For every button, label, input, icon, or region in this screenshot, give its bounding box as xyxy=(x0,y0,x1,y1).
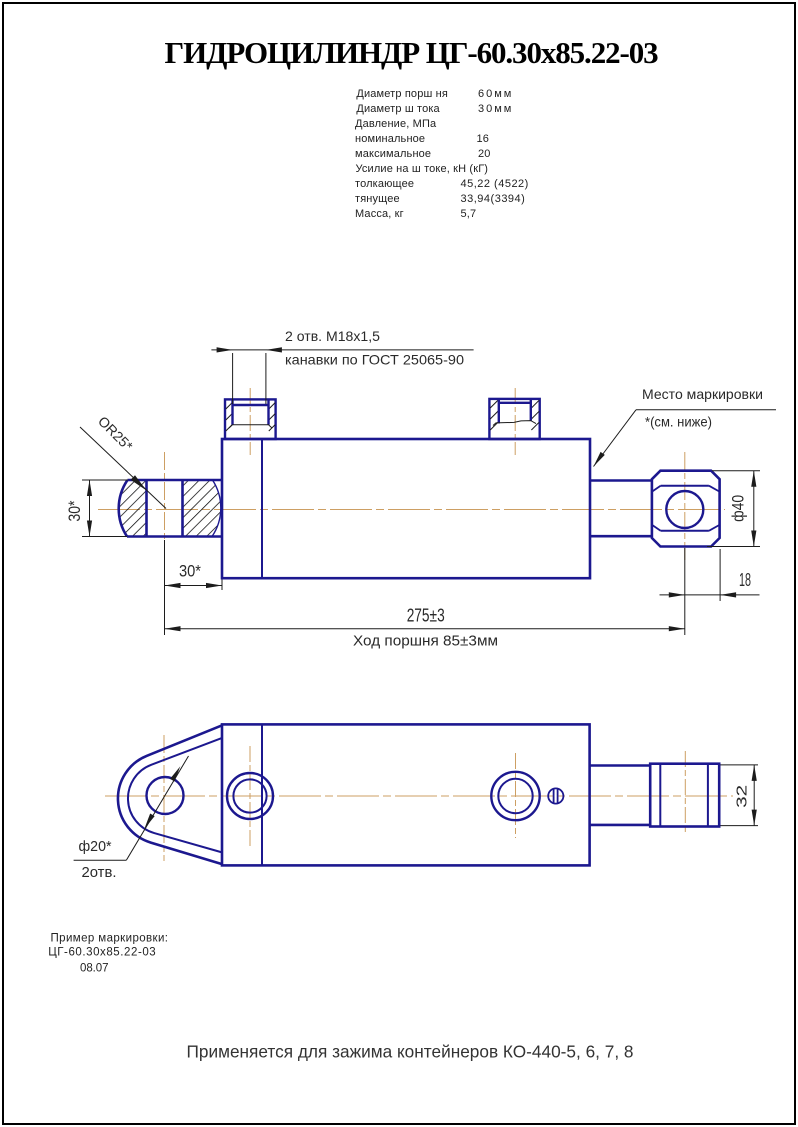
svg-text:Давление, МПа: Давление, МПа xyxy=(355,118,437,130)
svg-text:тянущее: тянущее xyxy=(355,193,400,205)
svg-text:номинальное: номинальное xyxy=(355,133,425,145)
svg-text:60мм: 60мм xyxy=(478,88,512,100)
svg-text:Ход поршня 85±3мм: Ход поршня 85±3мм xyxy=(353,633,498,650)
svg-text:275±3: 275±3 xyxy=(407,606,445,626)
svg-text:30мм: 30мм xyxy=(478,103,512,115)
svg-text:*(см. ниже): *(см. ниже) xyxy=(645,414,712,430)
svg-text:32: 32 xyxy=(734,785,751,808)
svg-text:30*: 30* xyxy=(65,500,84,521)
svg-text:30*: 30* xyxy=(179,562,201,581)
svg-text:16: 16 xyxy=(477,133,490,145)
svg-text:08.07: 08.07 xyxy=(80,962,109,974)
svg-text:Диаметр порш ня: Диаметр порш ня xyxy=(356,88,448,100)
svg-text:канавки по ГОСТ 25065-90: канавки по ГОСТ 25065-90 xyxy=(285,352,464,368)
svg-text:Пример маркировки:: Пример маркировки: xyxy=(51,933,169,945)
svg-text:ЦГ-60.30х85.22-03: ЦГ-60.30х85.22-03 xyxy=(48,947,156,959)
svg-text:максимальное: максимальное xyxy=(355,148,431,160)
svg-text:ГИДРОЦИЛИНДР ЦГ-60.30х85.22-03: ГИДРОЦИЛИНДР ЦГ-60.30х85.22-03 xyxy=(164,35,658,70)
svg-text:Масса, кг: Масса, кг xyxy=(355,208,404,220)
svg-text:Усилие на ш токе, кН (кГ): Усилие на ш токе, кН (кГ) xyxy=(356,163,489,175)
svg-text:2отв.: 2отв. xyxy=(82,864,117,881)
svg-text:ф20*: ф20* xyxy=(79,838,112,855)
svg-text:Диаметр ш тока: Диаметр ш тока xyxy=(356,103,440,115)
svg-text:ф40: ф40 xyxy=(729,495,748,522)
svg-text:2 отв. М18х1,5: 2 отв. М18х1,5 xyxy=(285,328,380,344)
svg-text:33,94(3394): 33,94(3394) xyxy=(461,193,526,205)
svg-text:толкающее: толкающее xyxy=(355,178,414,190)
svg-text:Место маркировки: Место маркировки xyxy=(642,386,763,402)
svg-text:18: 18 xyxy=(739,570,751,590)
svg-text:Применяется для зажима контейн: Применяется для зажима контейнеров КО-44… xyxy=(187,1042,634,1062)
svg-text:45,22 (4522): 45,22 (4522) xyxy=(461,178,529,190)
svg-text:20: 20 xyxy=(478,148,491,160)
svg-text:5,7: 5,7 xyxy=(461,208,477,220)
